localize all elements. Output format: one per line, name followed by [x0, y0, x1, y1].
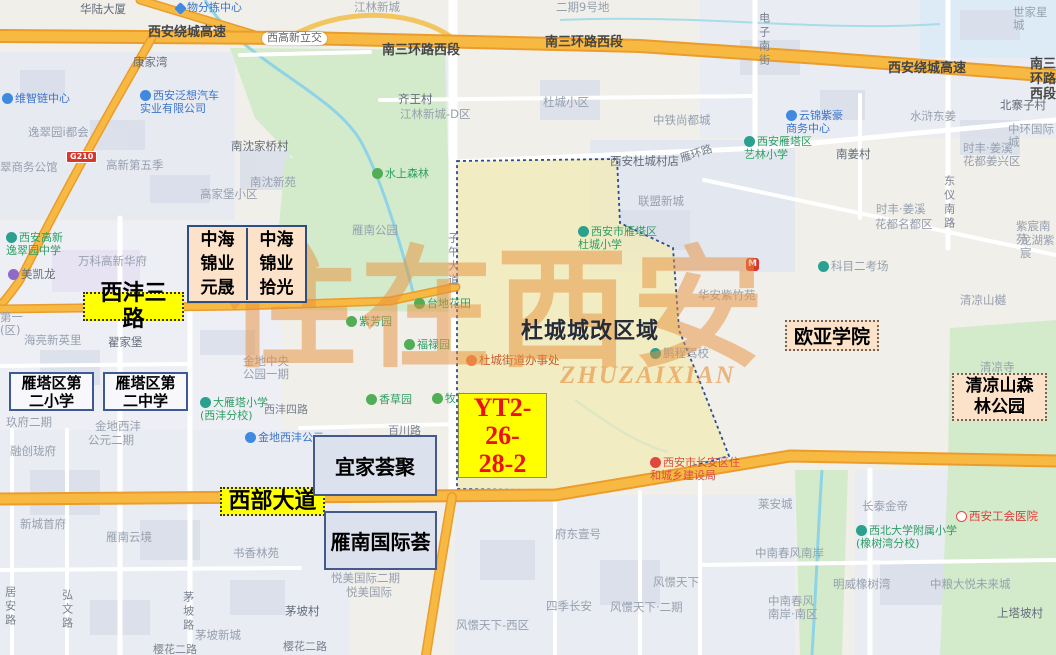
zhonghai-jinye-label-box: 中海 锦业 元晟 中海 锦业 拾光 [187, 225, 307, 303]
ikea-livat-label: 宜家荟聚 [313, 435, 437, 496]
qingliangshan-forest-park-label: 清凉山森 林公园 [952, 373, 1047, 421]
yanta-second-middle-school-label: 雁塔区第 二中学 [103, 372, 188, 411]
zhonghai-yuansheng-label: 中海 锦业 元晟 [189, 228, 248, 300]
zhonghai-shiguang-label: 中海 锦业 拾光 [248, 228, 305, 300]
yanta-second-primary-school-label: 雁塔区第 二小学 [9, 372, 94, 411]
yannan-international-label: 雁南国际荟 [324, 511, 437, 570]
eurasia-college-label: 欧亚学院 [785, 320, 879, 351]
plot-code-label: YT2- 26- 28-2 [458, 393, 547, 478]
road-label-west-avenue: 西部大道 [220, 487, 325, 516]
region-title: 杜城城改区域 [521, 313, 659, 345]
road-label-xifeng-3rd-road: 西沣三路 [83, 292, 184, 321]
map-canvas[interactable]: 华陆大厦物分拣中心西安绕城高速西高新立交南三环路西段南三环路西段西安绕城高速南三… [0, 0, 1056, 655]
